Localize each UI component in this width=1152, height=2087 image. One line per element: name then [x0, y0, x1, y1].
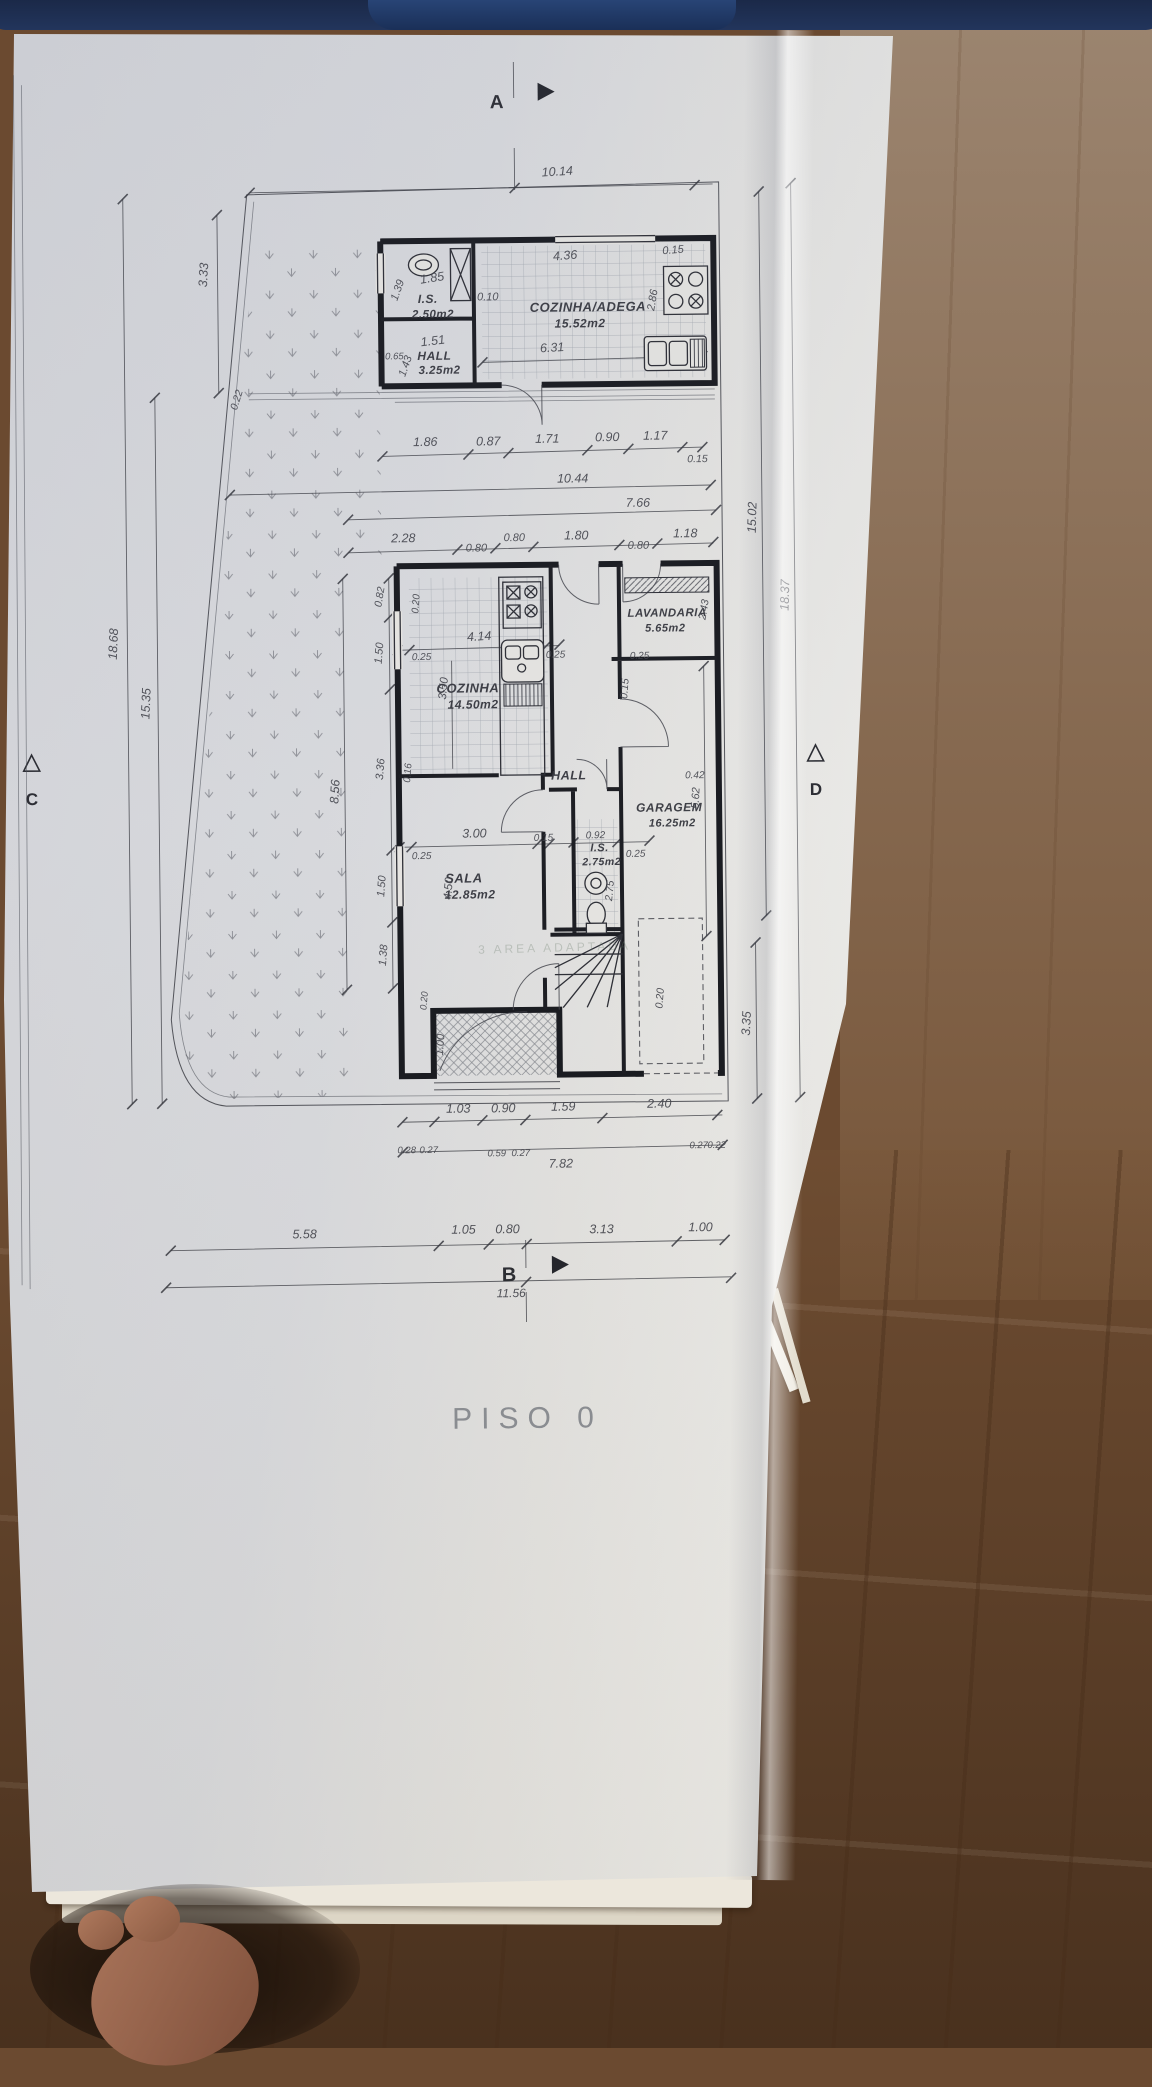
dimension-label: 5.62: [689, 787, 702, 809]
dimension-label: 1.80: [564, 528, 589, 542]
dimension-label: 5.58: [292, 1227, 317, 1241]
dimension-label: 2.75: [603, 880, 617, 903]
dimension-label: 18.68: [106, 628, 121, 660]
dimension-label: 1.59: [551, 1099, 576, 1113]
section-marker-label: B: [502, 1264, 517, 1286]
section-marker-label: C: [26, 790, 38, 809]
dimension-label: 0.27: [511, 1148, 530, 1159]
dimension-label: 1.50: [375, 874, 389, 897]
dimension-label: 0.27: [689, 1140, 708, 1151]
dimension-label: 3.36: [374, 757, 388, 780]
dimension-label: 0.10: [477, 291, 499, 303]
dimension-label: 3.50: [437, 676, 451, 700]
porch-steps: [434, 1082, 560, 1090]
dimension-label: 1.86: [413, 435, 438, 449]
dimension-label: 0.80: [495, 1222, 520, 1236]
section-arrow-b: [552, 1256, 569, 1274]
dimension-label: 0.20: [418, 990, 430, 1010]
dimension-label: 1.71: [535, 432, 559, 446]
dimension-label: 1.38: [377, 943, 391, 966]
room-label: 2.75m2: [581, 856, 621, 868]
dimension-label: 1.85: [419, 269, 445, 286]
dimension-label: 0.22: [707, 1140, 726, 1151]
dimension-label: 7.66: [626, 496, 651, 510]
room-label: I.S.: [590, 842, 609, 854]
room-label: 15.52m2: [555, 316, 606, 331]
drawing-title: PISO 0: [452, 1401, 603, 1436]
page-edge-lines: [9, 75, 34, 1289]
dimension-label: 0.59: [487, 1148, 506, 1159]
dimension-label: 0.27: [419, 1145, 438, 1156]
section-marker-label: D: [810, 780, 822, 799]
section-arrow-d: [807, 745, 823, 761]
room-label: 14.50m2: [448, 697, 499, 712]
dimension-label: 0.25: [412, 851, 432, 862]
laundry-counter: [625, 577, 709, 593]
dimension-label: 1.50: [373, 641, 387, 664]
double-sink-icon: [644, 336, 706, 371]
floor-plan-drawing: PISO 0: [0, 0, 1152, 2048]
stove-icon: [663, 266, 708, 314]
room-label: COZINHA/ADEGA: [530, 299, 646, 315]
dimension-label: 4.36: [552, 248, 577, 264]
room-label: I.S.: [418, 292, 438, 306]
dimension-label: 1.05: [451, 1222, 476, 1236]
dimension-label: 3.13: [589, 1222, 614, 1236]
dimension-label: 0.15: [662, 243, 685, 257]
dimension-label: 3.35: [739, 1011, 754, 1036]
dimension-label: 4.50: [442, 876, 456, 900]
dimension-label: 1.00: [434, 1033, 448, 1056]
big-toe: [124, 1896, 180, 1942]
dimension-label: 0.16: [402, 762, 414, 783]
dimension-label: 0.80: [466, 542, 488, 554]
dimension-label: 15.35: [138, 688, 153, 720]
dimension-label: 0.28: [397, 1145, 416, 1156]
parking-space-dashed: [638, 918, 704, 1064]
room-label: 3.25m2: [418, 365, 460, 377]
dimension-label: 10.44: [557, 471, 588, 485]
dimension-label: 15.02: [745, 502, 760, 534]
room-label: LAVANDARIA: [627, 607, 706, 620]
dimension-label: 18.37: [778, 578, 793, 611]
dimension-label: 0.25: [626, 849, 646, 860]
dimension-label: 0.20: [410, 593, 422, 614]
dimension-label: 0.20: [653, 987, 667, 1008]
room-label: HALL: [417, 349, 451, 363]
dimension-label: 0.80: [628, 540, 650, 552]
dimension-label: 4.14: [467, 629, 492, 645]
dimension-label: 0.15: [534, 833, 554, 844]
dimension-label: 2.43: [696, 598, 711, 621]
dimension-label: 6.31: [540, 340, 565, 356]
kitchen-sink-icon: [501, 640, 544, 706]
dimension-label: 1.03: [446, 1102, 471, 1116]
dimension-label: 7.82: [549, 1156, 574, 1170]
dimension-label: 8.56: [327, 779, 342, 804]
dimension-label: 0.82: [372, 586, 387, 608]
dimension-label: 0.90: [491, 1101, 516, 1115]
section-marker-label: A: [490, 92, 504, 113]
dimension-label: 0.15: [687, 453, 708, 465]
dimension-label: 0.25: [546, 650, 566, 661]
dimension-label: 1.51: [420, 333, 446, 350]
toilet-icon: [586, 902, 606, 933]
photographer-foot: [20, 1858, 380, 2048]
dimension-label: 1.18: [673, 526, 698, 540]
dimension-label: 0.87: [476, 434, 502, 448]
dimension-label: 0.80: [504, 532, 526, 544]
dimension-label: 0.42: [685, 770, 705, 781]
dimension-label: 2.40: [646, 1096, 672, 1110]
dimension-label: 3.00: [462, 826, 487, 840]
dimension-label: 10.14: [541, 164, 573, 180]
section-arrow-a: [538, 83, 555, 101]
dimension-label: 0.25: [412, 652, 432, 663]
room-label: 16.25m2: [649, 817, 696, 829]
dimension-label: 0.15: [618, 678, 632, 699]
dimension-label: 3.33: [196, 262, 211, 287]
toe: [78, 1910, 124, 1950]
porch-herringbone-floor: [433, 1010, 560, 1076]
dimension-label: 11.56: [497, 1286, 527, 1300]
dimension-label: 0.90: [595, 430, 620, 444]
dimension-label: 1.39: [389, 278, 407, 302]
dimension-label: 1.00: [688, 1220, 713, 1234]
room-label: HALL: [551, 768, 586, 782]
room-label: 2.50m2: [411, 309, 454, 321]
room-label: 5.65m2: [645, 622, 685, 634]
dimension-label: 1.17: [643, 428, 669, 442]
dimension-label: 0.25: [630, 651, 650, 662]
dimension-label: 0.92: [586, 830, 606, 841]
dimension-label: 2.28: [390, 531, 416, 545]
